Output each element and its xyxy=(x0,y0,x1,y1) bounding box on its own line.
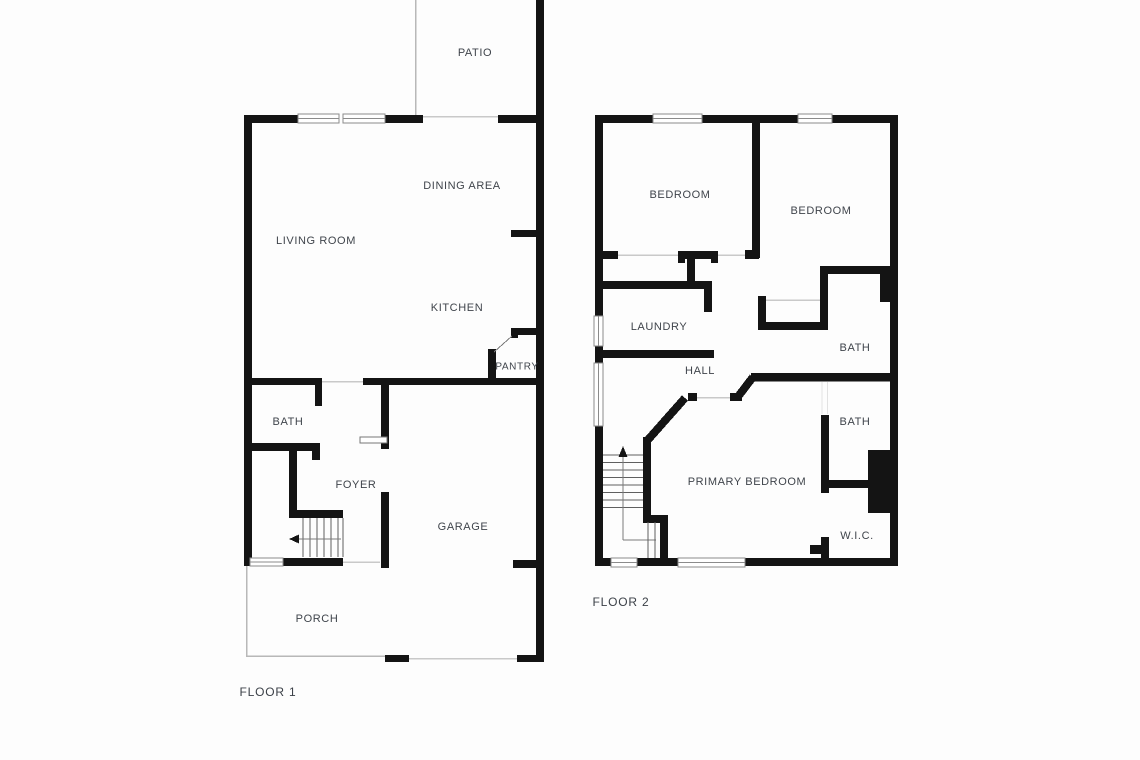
room-label-porch: PORCH xyxy=(296,613,339,625)
floor2-windows xyxy=(594,114,832,567)
room-label-kitchen: KITCHEN xyxy=(431,302,483,314)
room-label-garage: GARAGE xyxy=(438,521,489,533)
floor2-plan xyxy=(594,114,898,567)
pantry-door xyxy=(494,336,512,352)
room-label-bedroom-right: BEDROOM xyxy=(790,205,851,217)
room-label-bath-upper: BATH xyxy=(840,342,871,354)
bath-upper-wall xyxy=(825,266,891,274)
hall-walls xyxy=(646,373,894,442)
floor1-plan xyxy=(244,0,544,662)
room-label-bath-lower: BATH xyxy=(840,416,871,428)
room-label-dining-area: DINING AREA xyxy=(423,180,501,192)
room-label-hall: HALL xyxy=(685,365,715,377)
floor2-title: FLOOR 2 xyxy=(593,595,650,609)
living-room-window xyxy=(298,114,385,123)
room-label-pantry: PANTRY xyxy=(495,362,538,373)
room-label-foyer: FOYER xyxy=(336,479,377,491)
room-label-primary-bedroom: PRIMARY BEDROOM xyxy=(688,476,807,488)
room-label-wic: W.I.C. xyxy=(840,530,874,542)
room-label-laundry: LAUNDRY xyxy=(631,321,688,333)
wall-block-lower xyxy=(868,450,891,513)
stair-direction-arrow xyxy=(619,446,628,457)
stairs-floor1 xyxy=(289,518,343,557)
floorplan-image: PATIO DINING AREA LIVING ROOM KITCHEN PA… xyxy=(0,0,1140,760)
room-label-patio: PATIO xyxy=(458,47,492,59)
stair-direction-arrow xyxy=(289,535,299,544)
garage-entry-door xyxy=(360,437,387,443)
floor2-exterior-walls xyxy=(595,115,898,566)
floor1-interior-walls xyxy=(244,230,537,568)
floorplan-drawing xyxy=(0,0,1140,760)
foyer-window xyxy=(250,558,283,566)
floor1-title: FLOOR 1 xyxy=(240,685,297,699)
room-label-living-room: LIVING ROOM xyxy=(276,235,356,247)
bedroom2-closet xyxy=(758,266,828,330)
room-label-bath-floor1: BATH xyxy=(273,416,304,428)
room-label-bedroom-left: BEDROOM xyxy=(649,189,710,201)
primary-suite-walls xyxy=(810,415,868,566)
porch-outline xyxy=(246,566,385,656)
stairs-floor2 xyxy=(603,437,668,566)
